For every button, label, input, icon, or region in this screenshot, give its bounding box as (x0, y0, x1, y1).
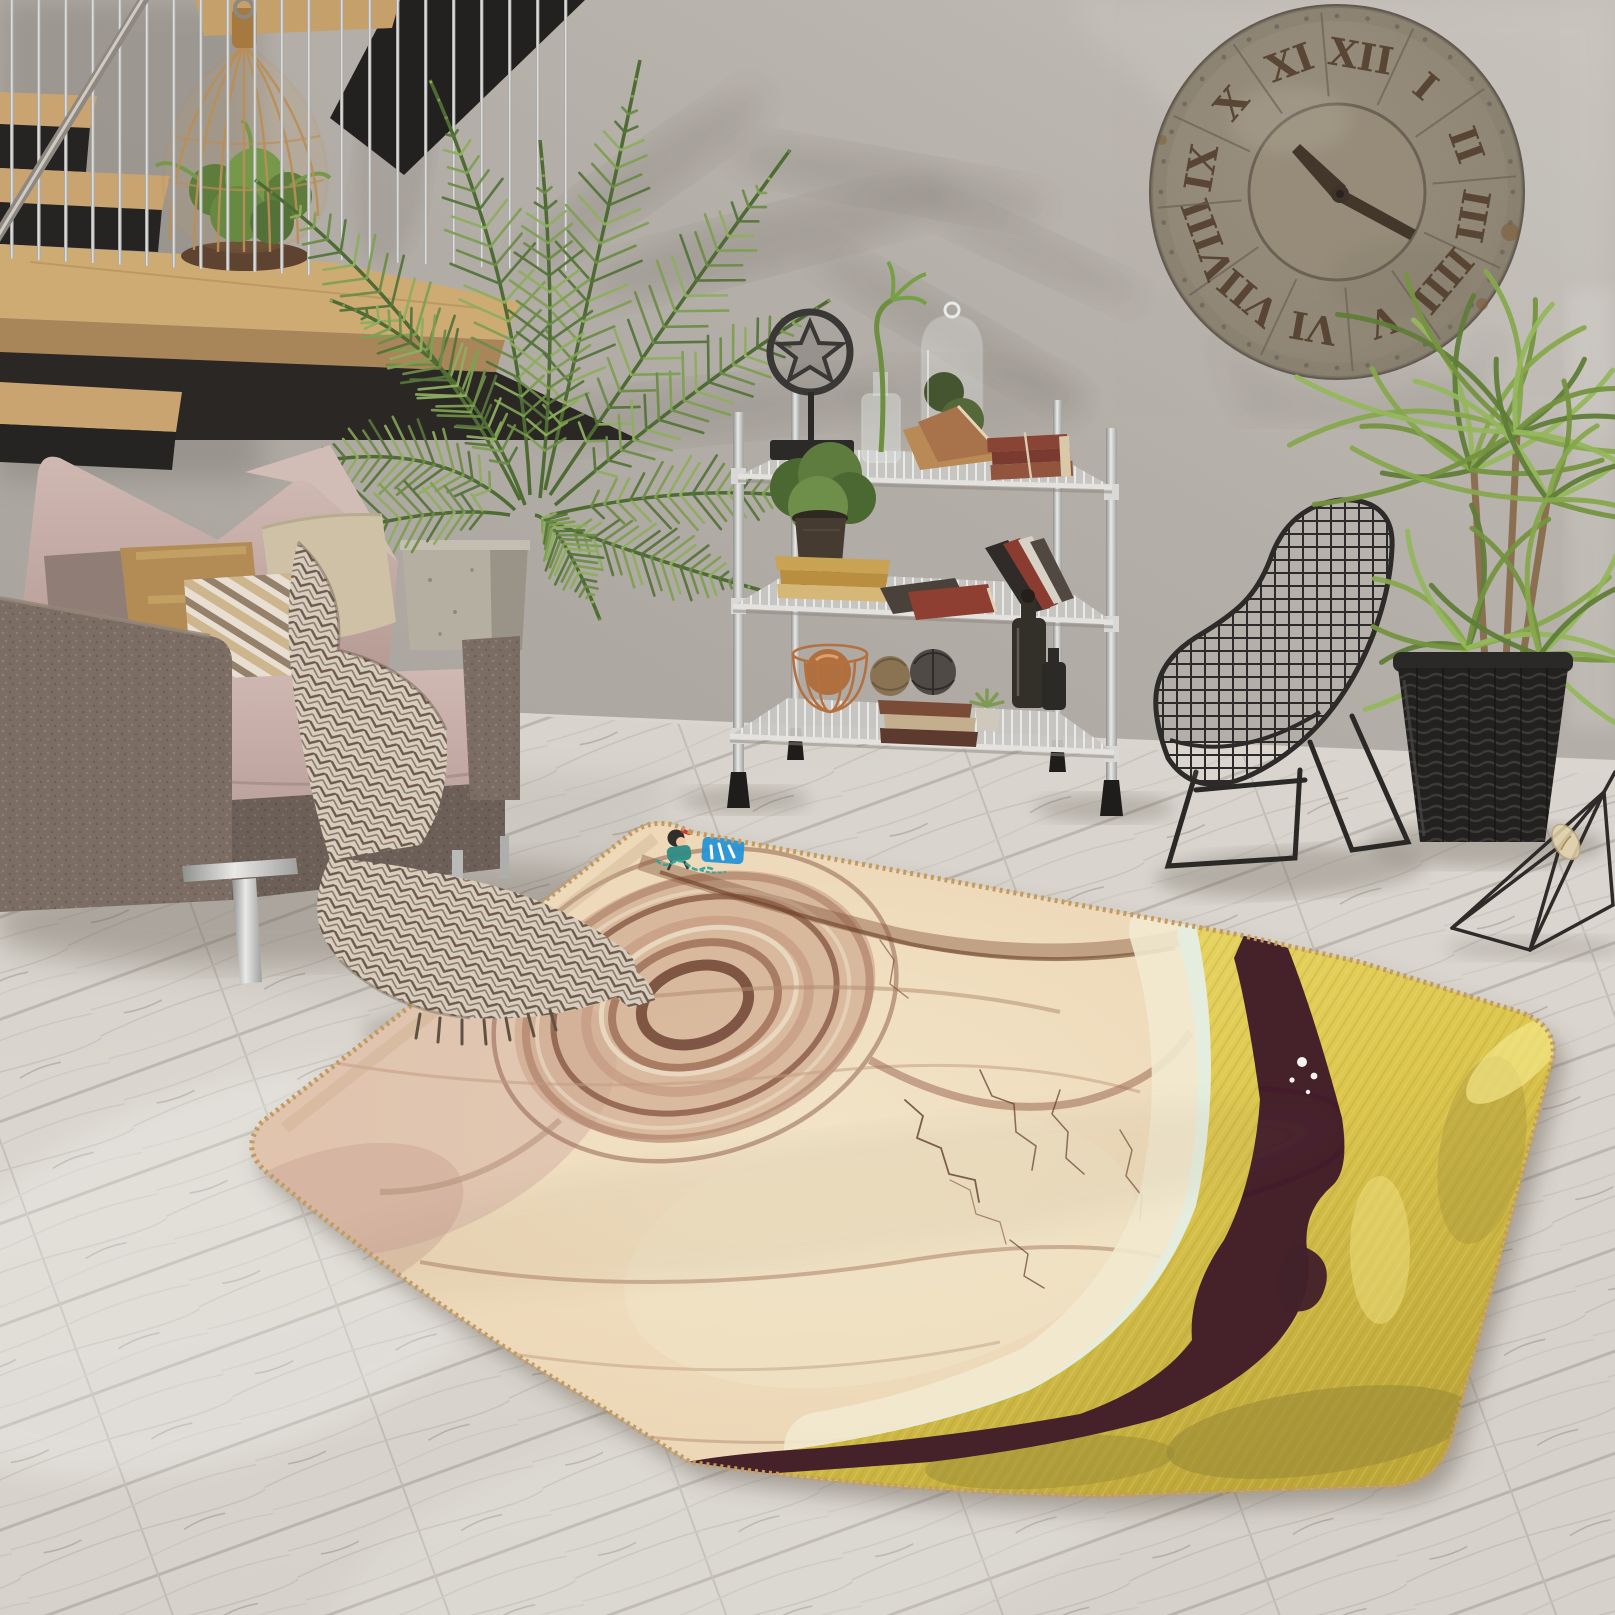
palm-leaflet (400, 312, 401, 335)
baluster (172, 0, 176, 267)
palm-leaflet (708, 336, 709, 382)
baluster (536, 0, 539, 270)
baluster (340, 0, 343, 260)
palm-leaflet (589, 594, 594, 595)
sofa-arm-far (462, 636, 520, 800)
clock-rivet (1365, 363, 1370, 368)
clock-rivet (1221, 324, 1226, 329)
palm-leaflet (757, 319, 758, 348)
clock-rivet (1487, 102, 1492, 107)
clock-rivet (1508, 159, 1513, 164)
clock-rivet (1365, 16, 1370, 21)
palm-leaflet (377, 307, 379, 322)
baluster (280, 0, 284, 273)
palm-leaflet (314, 213, 315, 227)
shelf-foot (727, 772, 750, 808)
palm-leaflet (447, 134, 454, 136)
clock-rivet (1304, 363, 1309, 368)
baluster (226, 0, 230, 270)
clock-rivet (1182, 278, 1187, 283)
clock-rivet (1169, 129, 1174, 134)
clock-rivet (1200, 76, 1205, 81)
clock-rivet (1221, 55, 1226, 60)
palm-leaflet (653, 342, 706, 343)
clock-rivet (1508, 220, 1513, 225)
clock-rivet (1274, 355, 1279, 360)
clock-rivet (1200, 303, 1205, 308)
book-stack-bottom (878, 700, 978, 747)
clock-rivet (1304, 16, 1309, 21)
baluster (307, 0, 311, 275)
clock-rivet (1161, 159, 1166, 164)
clock-rivet (1395, 355, 1400, 360)
clock-rivet (1161, 220, 1166, 225)
clock-rivet (1247, 342, 1252, 347)
baluster (91, 0, 95, 263)
clock-rivet (1159, 190, 1164, 195)
baluster (396, 0, 399, 263)
clock-numeral: III (1446, 186, 1500, 246)
yellow-book-stack (775, 556, 892, 602)
palm-leaflet (645, 395, 647, 430)
palm-leaflet (609, 407, 640, 408)
clock-rivet (1423, 37, 1428, 42)
palm-pot (400, 540, 530, 650)
palm-leaflet (586, 441, 606, 442)
living-room-photo: XIIIIIIIIIIIIVVIVIIVIIIIXXXI (0, 0, 1615, 1615)
clock-numeral: VI (1286, 302, 1341, 355)
baluster (508, 0, 511, 268)
palm-leaflet (607, 437, 609, 460)
clock-rivet (1395, 24, 1400, 29)
palm-leaflet (670, 372, 671, 410)
palm-leaflet (594, 448, 596, 471)
palm-leaflet (436, 406, 473, 407)
palm-leaflet (438, 415, 481, 416)
clock-rivet (1448, 55, 1453, 60)
clock-rivet (1511, 190, 1516, 195)
clock-rivet (1182, 102, 1187, 107)
palm-leaflet (389, 311, 390, 329)
palm-leaflet (561, 539, 591, 540)
palm-leaflet (695, 353, 696, 391)
clock-rivet (1335, 366, 1340, 371)
palm-leaflet (597, 424, 629, 425)
palm-leaflet (555, 530, 584, 531)
clock-rivet (1500, 250, 1505, 255)
wall-clock: XIIIIIIIIIIIIVVIVIIVIIIIXXXI (1151, 6, 1523, 378)
clock-numeral: IX (1175, 140, 1228, 195)
palm-leaflet (675, 311, 728, 312)
baluster (145, 0, 149, 266)
clock-rivet (1469, 76, 1474, 81)
palm-leaflet (300, 206, 301, 215)
palm-leaflet (642, 358, 683, 359)
clock-rivet (1448, 324, 1453, 329)
palm-leaflet (683, 352, 684, 401)
wicker-pot (1398, 668, 1568, 842)
palm-leaflet (631, 374, 679, 375)
clock-rivet (1500, 129, 1505, 134)
baluster (253, 0, 257, 272)
baluster (424, 0, 427, 264)
scene-canvas: XIIIIIIIIIIIIVVIVIIVIIIIXXXI (0, 0, 1615, 1615)
clock-rivet (1169, 250, 1174, 255)
baluster (199, 0, 203, 269)
palm-leaflet (489, 472, 490, 490)
palm-leaflet (620, 390, 655, 391)
clock-rivet (1247, 37, 1252, 42)
clock-rivet (1274, 24, 1279, 29)
baluster (368, 0, 371, 261)
palm-leaflet (664, 326, 707, 327)
baluster (37, 0, 41, 260)
shelf-foot (1100, 780, 1123, 816)
clock-rivet (1335, 14, 1340, 19)
palm-leaflet (411, 308, 412, 343)
tied-book-stack (987, 430, 1073, 482)
sofa-arm (0, 598, 232, 912)
